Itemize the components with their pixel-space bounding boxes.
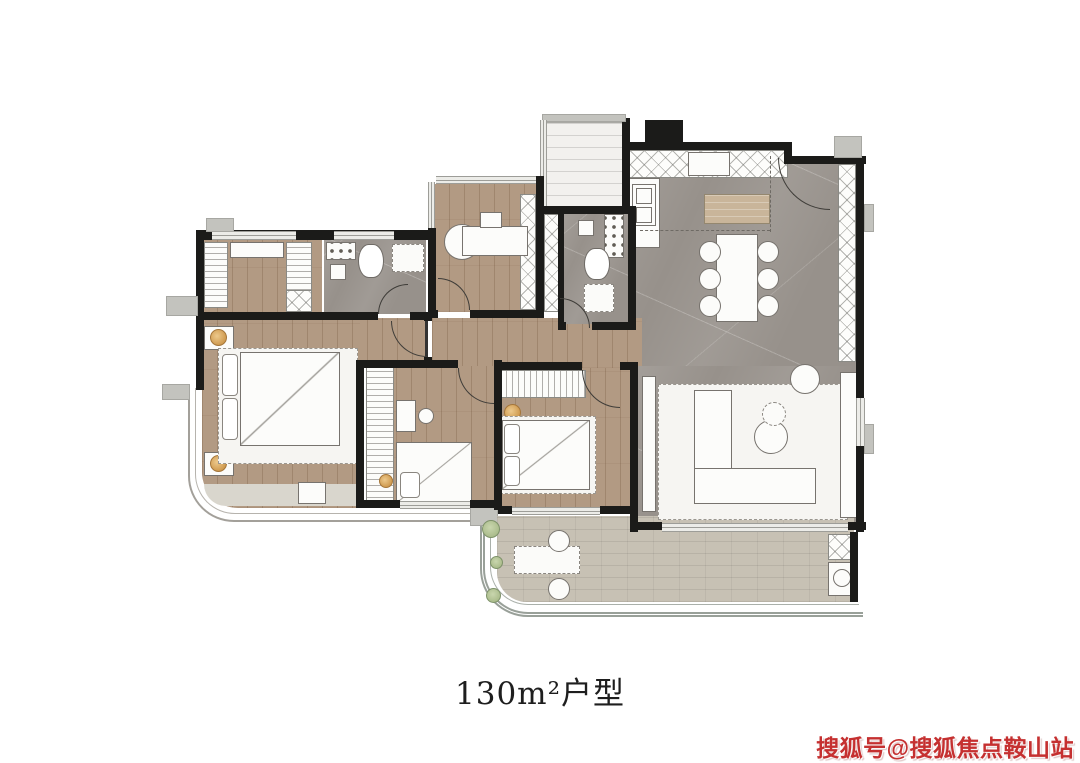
page: { "caption": { "text": "130m²户型" }, "wat…	[0, 0, 1080, 756]
wall-segment	[850, 532, 858, 602]
balcony-stool	[548, 530, 570, 552]
sink-basin	[636, 207, 652, 223]
bath2-sink	[578, 220, 594, 236]
trim	[542, 114, 626, 122]
closet-rack-left	[204, 242, 228, 308]
dining-chair	[757, 295, 779, 317]
monitor-icon	[480, 212, 502, 228]
wall-segment	[856, 368, 864, 398]
wall-segment	[630, 522, 662, 530]
master-bed	[240, 352, 340, 446]
wall-segment	[470, 500, 498, 508]
left-window-tab	[166, 296, 198, 316]
window	[512, 507, 600, 515]
vanity-counter	[326, 242, 356, 260]
shower-area	[392, 244, 424, 272]
utility-balcony	[546, 122, 624, 208]
entry-shoe-cabinet	[838, 164, 856, 362]
plant-icon	[490, 556, 503, 569]
wall-segment	[356, 500, 400, 508]
watermark: 搜狐号@搜狐焦点鞍山站	[816, 729, 1074, 763]
floor-plan	[0, 0, 1080, 756]
wall-segment	[428, 228, 436, 316]
stove-icon	[688, 152, 730, 176]
soffit-line	[640, 230, 770, 231]
wall-segment	[470, 310, 544, 318]
bedroom2-chair	[418, 408, 434, 424]
closet-cabinet	[286, 290, 312, 312]
window	[400, 501, 470, 509]
lamp-icon	[379, 474, 393, 488]
window	[436, 176, 536, 184]
closet-shelf	[230, 242, 284, 258]
bath2-toilet	[584, 248, 610, 280]
wall-segment	[494, 360, 502, 510]
wall-segment	[430, 310, 438, 318]
bath2-shower	[584, 284, 614, 312]
sink-basin	[636, 188, 652, 204]
plant-icon	[482, 520, 500, 538]
balcony-stool	[548, 578, 570, 600]
trim	[162, 384, 190, 400]
washbasin-icon	[330, 264, 346, 280]
balcony-table	[514, 546, 580, 574]
trim	[834, 136, 862, 158]
side-table	[762, 402, 786, 426]
pillow	[400, 472, 420, 498]
bath2-vanity	[604, 214, 624, 258]
pillow	[504, 424, 520, 454]
lamp-icon	[210, 329, 227, 346]
plan-caption: 130m²户型	[0, 668, 1080, 713]
window	[334, 231, 394, 240]
dining-chair	[757, 241, 779, 263]
trim	[864, 424, 874, 454]
pillow	[222, 354, 238, 396]
desk	[462, 226, 528, 256]
window	[212, 231, 296, 240]
pillow	[222, 398, 238, 440]
wall-segment	[196, 312, 378, 320]
wall-segment	[622, 118, 630, 214]
toilet-icon	[358, 244, 384, 278]
wall-segment	[600, 506, 636, 514]
dining-chair	[699, 241, 721, 263]
dining-chair	[699, 268, 721, 290]
bedroom3-wardrobe	[500, 370, 586, 398]
window	[428, 182, 435, 228]
wall-segment	[356, 362, 364, 508]
dining-chair	[699, 295, 721, 317]
sofa	[694, 468, 816, 504]
bedroom2-desk	[396, 400, 416, 432]
living-side-cabinet	[642, 376, 656, 512]
master-bay-sill	[204, 484, 356, 506]
bedroom-bench	[298, 482, 326, 504]
wall-segment	[856, 160, 864, 372]
wall-segment	[502, 362, 582, 370]
wall-segment	[628, 212, 636, 330]
sliding-door	[662, 523, 848, 532]
plant-icon	[486, 588, 501, 603]
wall-segment	[356, 360, 458, 368]
soffit-line	[770, 156, 771, 232]
trim	[864, 204, 874, 232]
wall-segment	[856, 446, 864, 532]
wall-segment	[848, 522, 866, 530]
washer-drum	[833, 569, 851, 587]
kitchen-island	[704, 194, 770, 224]
pillow	[504, 456, 520, 486]
dining-table	[716, 234, 758, 322]
wall-segment	[592, 322, 636, 330]
dining-chair	[757, 268, 779, 290]
wall-segment	[536, 176, 544, 316]
wall-segment	[498, 506, 512, 514]
armchair	[790, 364, 820, 394]
trim	[206, 218, 234, 232]
wall-segment	[196, 320, 204, 390]
flue-column	[645, 120, 683, 144]
